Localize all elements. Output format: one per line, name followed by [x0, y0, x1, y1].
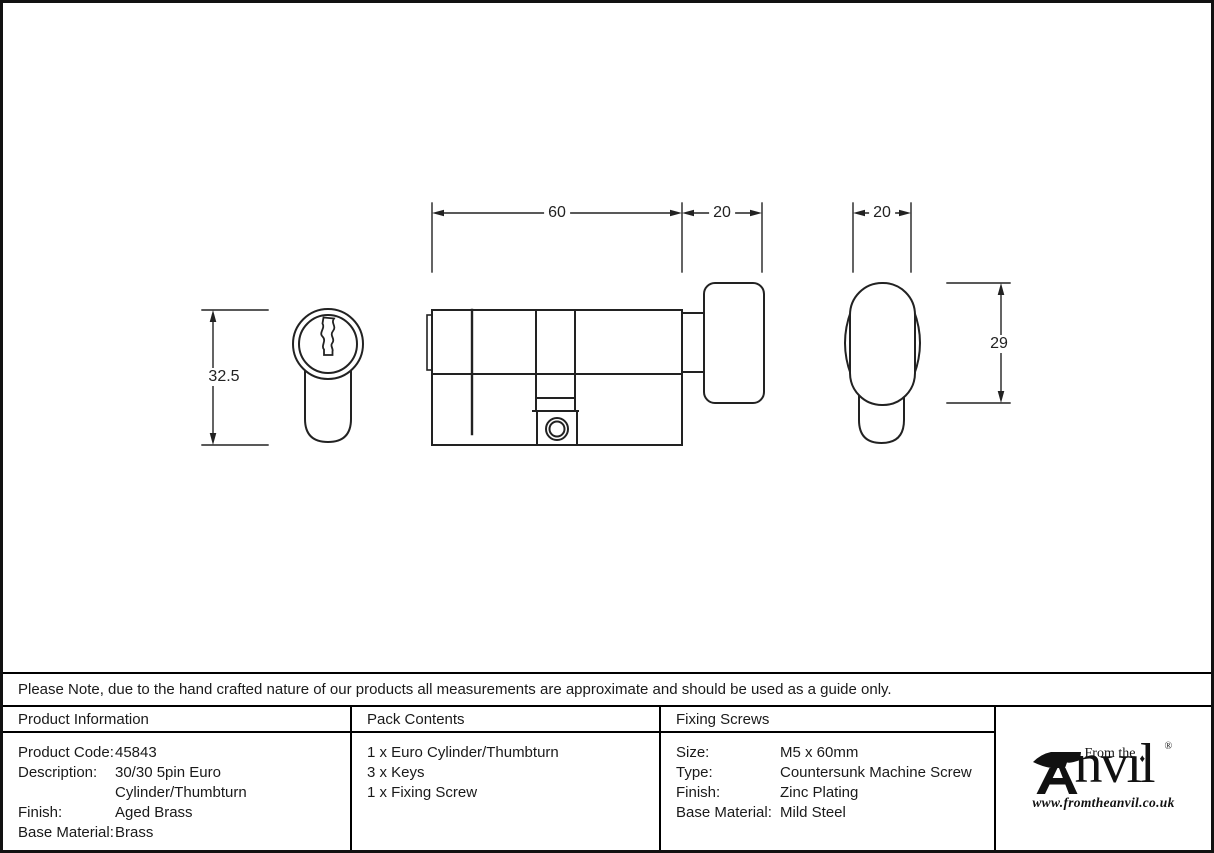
screw-type-label: Type:	[676, 763, 780, 783]
fixing-screws-cell: Fixing Screws Size: M5 x 60mm Type: Coun…	[661, 707, 996, 850]
cylinder-face-view	[293, 309, 363, 442]
finish-row: Finish: Aged Brass	[18, 803, 344, 823]
product-information-header: Product Information	[3, 707, 350, 733]
pack-item: 1 x Euro Cylinder/Thumbturn	[367, 743, 653, 763]
screw-type-value: Countersunk Machine Screw	[780, 763, 972, 783]
base-material-row: Base Material: Brass	[18, 823, 344, 843]
pack-item: 3 x Keys	[367, 763, 653, 783]
screw-size-label: Size:	[676, 743, 780, 763]
fixing-screws-header: Fixing Screws	[661, 707, 994, 733]
technical-drawing: 32.5 60 20 20 29	[0, 0, 1214, 672]
dim-thumbturn-depth-label: 20	[709, 204, 735, 222]
base-material-value: Brass	[115, 823, 153, 843]
product-information-cell: Product Information Product Code: 45843 …	[3, 707, 352, 850]
product-code-label: Product Code:	[18, 743, 115, 763]
spec-table: Please Note, due to the hand crafted nat…	[3, 672, 1211, 850]
brand-logo-cell: nvıl From the ♦ ® www.fromtheanvil.co.uk	[996, 707, 1211, 850]
screw-size-value: M5 x 60mm	[780, 743, 858, 763]
measurement-note: Please Note, due to the hand crafted nat…	[3, 674, 1211, 707]
cylinder-side-view	[427, 283, 764, 445]
finish-value: Aged Brass	[115, 803, 193, 823]
pack-item: 1 x Fixing Screw	[367, 783, 653, 803]
finish-label: Finish:	[18, 803, 115, 823]
screw-base-material-value: Mild Steel	[780, 803, 846, 823]
screw-base-material-label: Base Material:	[676, 803, 780, 823]
thumbturn-knob-side	[704, 283, 764, 403]
dim-cylinder-length-label: 60	[544, 204, 570, 222]
product-spec-sheet: 32.5 60 20 20 29 Please Note, due to the…	[0, 0, 1214, 853]
logo-tagline: From the	[1085, 746, 1136, 762]
description-label: Description:	[18, 763, 115, 803]
keyhole-icon	[321, 318, 334, 356]
thumbturn-neck	[682, 313, 704, 372]
screw-type-row: Type: Countersunk Machine Screw	[676, 763, 988, 783]
thumbturn-front-view	[845, 283, 920, 443]
screw-size-row: Size: M5 x 60mm	[676, 743, 988, 763]
description-value: 30/30 5pin Euro Cylinder/Thumbturn	[115, 763, 344, 803]
description-row: Description: 30/30 5pin Euro Cylinder/Th…	[18, 763, 344, 803]
screw-finish-value: Zinc Plating	[780, 783, 858, 803]
product-code-value: 45843	[115, 743, 157, 763]
diamond-icon: ♦	[1140, 753, 1146, 765]
dim-face-height-label: 32.5	[204, 368, 243, 386]
drawing-canvas	[0, 0, 1214, 672]
screw-base-material-row: Base Material: Mild Steel	[676, 803, 988, 823]
screw-finish-row: Finish: Zinc Plating	[676, 783, 988, 803]
dim-thumbturn-width-label: 20	[869, 204, 895, 222]
product-code-row: Product Code: 45843	[18, 743, 344, 763]
from-the-anvil-logo: nvıl From the ♦ ® www.fromtheanvil.co.uk	[1031, 746, 1177, 812]
registered-trademark-icon: ®	[1165, 741, 1173, 752]
dim-thumbturn-height-label: 29	[986, 335, 1012, 353]
screw-finish-label: Finish:	[676, 783, 780, 803]
base-material-label: Base Material:	[18, 823, 115, 843]
logo-website-url: www.fromtheanvil.co.uk	[1029, 795, 1179, 811]
pack-contents-header: Pack Contents	[352, 707, 659, 733]
pack-contents-cell: Pack Contents 1 x Euro Cylinder/Thumbtur…	[352, 707, 661, 850]
